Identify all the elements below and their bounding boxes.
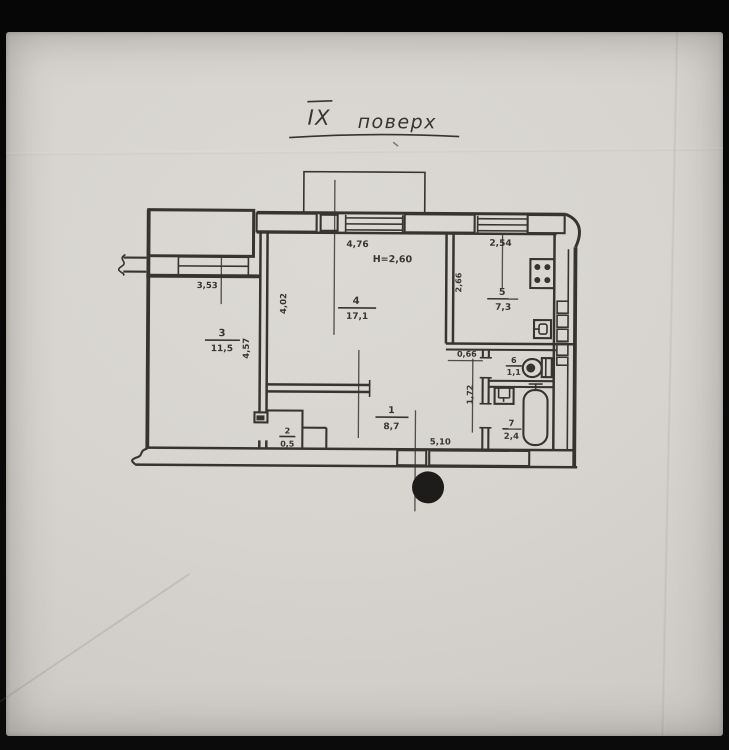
dim-kitchen-window: 2,54 — [489, 239, 511, 249]
room4-window-axis — [334, 180, 335, 335]
hall-number: 1 — [388, 405, 395, 416]
bathtub-icon — [523, 384, 547, 445]
closet-number: 2 — [285, 427, 291, 436]
dim-room4-depth: 4,02 — [279, 293, 289, 314]
closet-partitions — [266, 410, 326, 448]
room4-hall-wall-b — [268, 391, 370, 392]
room-label-2: 2 0,5 — [279, 426, 295, 448]
room4-hall-wall-a — [268, 384, 370, 385]
title-floor-word: поверх — [358, 111, 437, 133]
balcony-outline — [304, 172, 425, 214]
window-kitchen — [478, 216, 528, 234]
bath-number: 7 — [508, 419, 514, 429]
closet-area: 0,5 — [280, 439, 295, 448]
top-wall-block-3 — [528, 215, 565, 233]
bath-area: 2,4 — [504, 432, 519, 442]
top-wall-block-2 — [405, 214, 475, 232]
dim-kitchen-depth: 2,66 — [454, 272, 463, 292]
room3-number: 3 — [218, 328, 225, 339]
kitchen-area: 7,3 — [495, 303, 511, 313]
hall-area: 8,7 — [383, 422, 399, 432]
room-label-4: 4 17,1 — [338, 296, 376, 322]
wc-number: 6 — [511, 356, 517, 365]
wc-area: 1,1 — [507, 368, 522, 377]
window-room4 — [346, 215, 403, 233]
toilet-icon — [523, 358, 552, 377]
alcove-outline — [148, 210, 253, 257]
room-label-7: 7 2,4 — [502, 419, 521, 442]
window-room3 — [178, 257, 248, 276]
right-wall-inner-face-lower — [567, 364, 568, 450]
room-label-3: 3 11,5 — [205, 328, 240, 354]
room3-area: 11,5 — [211, 344, 233, 354]
room-label-5: 5 7,3 — [487, 287, 518, 313]
bath-sink-icon — [495, 388, 514, 404]
title-stray-mark — [393, 142, 398, 146]
room4-number: 4 — [353, 296, 360, 307]
title-overline — [307, 101, 332, 102]
dim-room3-window: 3,53 — [197, 281, 218, 291]
kitchen-number: 5 — [499, 287, 506, 298]
room-label-1: 1 8,7 — [375, 405, 408, 432]
dim-niche: 0,66 — [457, 350, 477, 359]
dim-hall-width: 5,10 — [430, 437, 451, 447]
hole-punch-dot — [412, 471, 444, 503]
room4-area: 17,1 — [346, 312, 368, 322]
title-underline — [289, 134, 459, 139]
wall-break-bottom-left — [132, 449, 147, 465]
dim-room4-window: 4,76 — [346, 240, 368, 250]
room3-room4-wall-b — [266, 232, 267, 412]
title-floor-roman: ІХ — [307, 106, 331, 130]
bottom-wall-panel-2 — [429, 450, 529, 466]
room-label-6: 6 1,1 — [506, 356, 522, 377]
page-title: ІХ поверх — [289, 101, 459, 147]
stove-icon — [530, 259, 554, 288]
bottom-wall-panel-1 — [397, 450, 426, 465]
ceiling-height-note: Н=2,60 — [373, 254, 413, 265]
right-wall — [574, 247, 575, 468]
dim-bath-depth: 1,72 — [466, 385, 475, 405]
kitchen-sink-icon — [534, 320, 551, 338]
vent-shaft — [557, 301, 568, 365]
right-wall-flare — [566, 214, 580, 247]
dim-room3-depth: 4,57 — [242, 338, 252, 359]
wall-break-left-stub — [119, 255, 147, 276]
room3-room4-wall-a — [259, 232, 260, 412]
floor-plan-drawing: ІХ поверх — [0, 0, 729, 750]
axis-lines — [220, 179, 503, 512]
hall-right-wall — [479, 350, 492, 450]
room3-door-hinge — [256, 415, 264, 420]
kitchen-bottom-wall-a — [446, 344, 575, 345]
top-wall-block-1 — [257, 213, 317, 231]
room4-kitchen-wall-a — [446, 234, 447, 344]
hall-dim-line — [358, 350, 359, 438]
